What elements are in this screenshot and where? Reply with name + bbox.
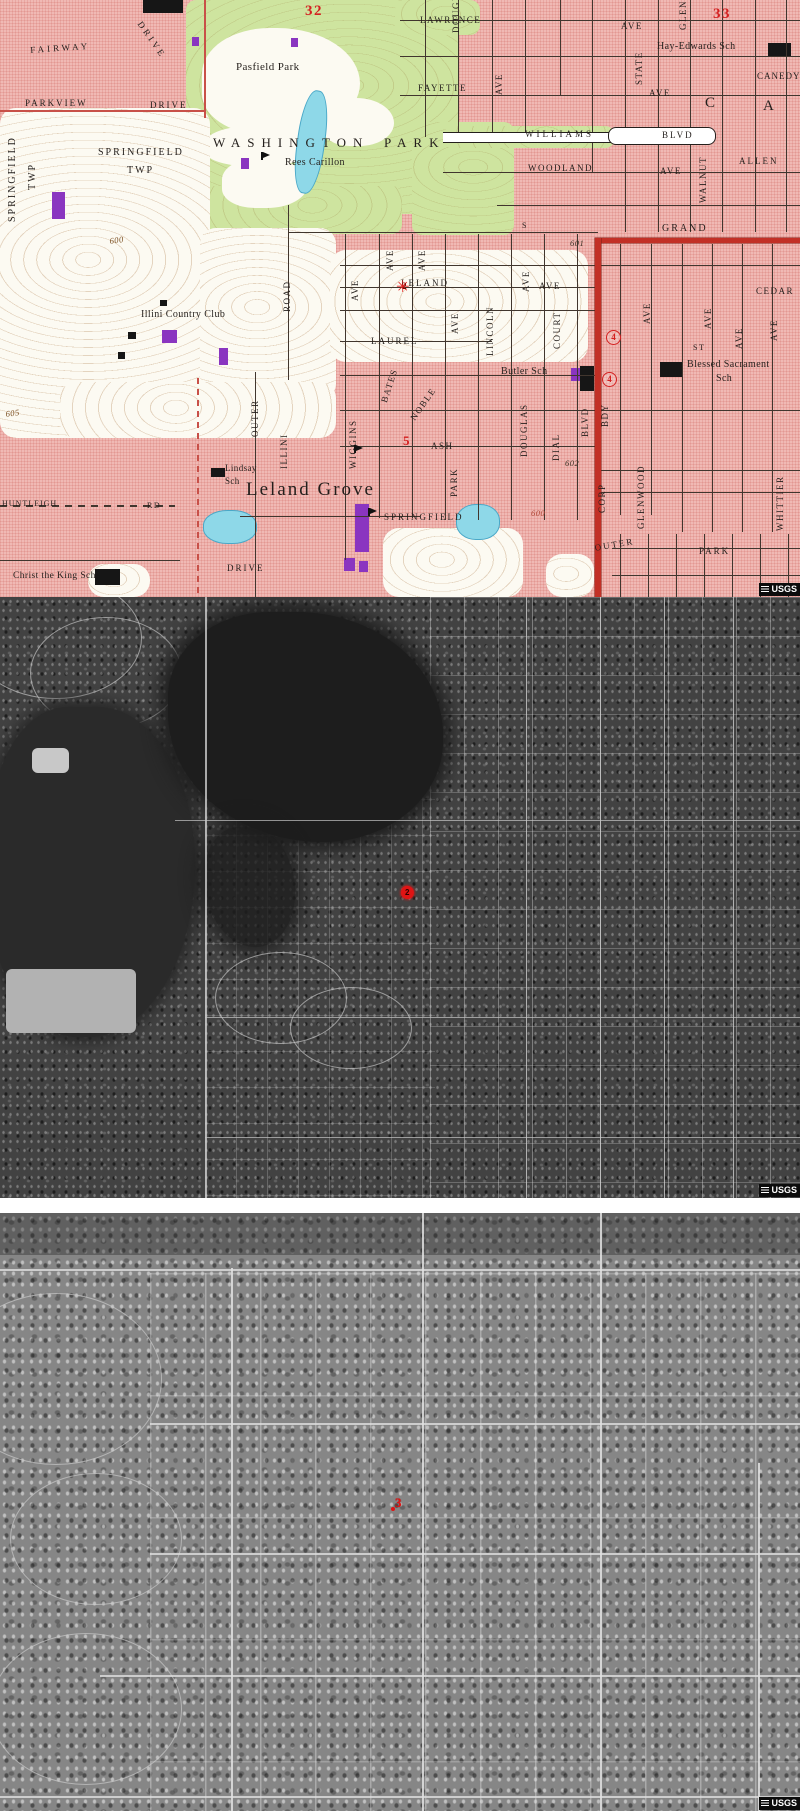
usgs-badge-text: USGS [771, 583, 797, 596]
section-line [204, 0, 206, 118]
map-label: HUNTLEIGH [2, 500, 57, 508]
map-label: WOODLAND [528, 164, 593, 173]
street [0, 1796, 800, 1798]
road-line [625, 0, 626, 232]
road-line [592, 0, 593, 172]
building-purple [355, 504, 369, 552]
map-label: AVE [495, 73, 504, 95]
map-label: TWP [28, 163, 38, 190]
road-line [412, 234, 413, 518]
section-line-dashed [197, 378, 199, 597]
map-label: AVE [418, 249, 427, 271]
map-label: ROAD [283, 280, 292, 312]
road-line [340, 410, 800, 411]
map-label: AVE [539, 282, 561, 291]
map-label: AVE [643, 302, 652, 324]
building [160, 300, 167, 306]
road-line [598, 470, 800, 471]
map-label: Illini Country Club [141, 310, 225, 320]
map-label: BATES [380, 368, 399, 404]
street [205, 1017, 800, 1018]
road-line [544, 234, 545, 520]
street [150, 1423, 800, 1425]
map-label: DOUGLAS [452, 0, 461, 33]
road-line [598, 492, 800, 493]
street [664, 597, 665, 1198]
street-grid-texture [150, 1273, 800, 1811]
road-line [712, 244, 713, 532]
map-label: 5 [403, 434, 411, 447]
road-line [648, 534, 649, 597]
usgs-badge: USGS [759, 1797, 800, 1810]
street [422, 1213, 424, 1811]
map-label: AVE [621, 22, 643, 31]
curved-street [290, 987, 412, 1069]
road-line [651, 244, 652, 515]
curved-street [0, 1293, 162, 1465]
aerial-photo-low-section: 3 USGS [0, 1213, 800, 1811]
school-flag-symbol [354, 445, 356, 453]
building-purple [359, 561, 368, 572]
map-label: BLVD [581, 407, 590, 437]
tree-line [0, 1213, 800, 1255]
map-label: Lindsay [225, 464, 257, 473]
road-line [612, 575, 800, 576]
map-label: WASHINGTON [213, 136, 369, 149]
railroad-corridor [0, 1269, 800, 1271]
map-label: Pasfield Park [236, 62, 300, 73]
street [231, 1268, 233, 1811]
map-label: DIAL [552, 434, 561, 462]
road-line [676, 534, 677, 597]
road-line [690, 0, 691, 232]
building-purple [52, 192, 65, 219]
map-label: GLEN [679, 0, 688, 30]
map-label: Sch [225, 477, 240, 486]
street [100, 1675, 800, 1677]
road-line [478, 234, 479, 520]
map-label: GRAND [662, 224, 708, 234]
road-line [445, 234, 446, 520]
map-label: GLENWOOD [637, 465, 646, 529]
map-label: 601 [570, 239, 584, 248]
road-line [511, 234, 512, 520]
site-marker-number: 2 [405, 888, 409, 897]
map-label: TWP [127, 166, 154, 176]
map-label: LAUREL [371, 337, 419, 346]
road-line [560, 0, 561, 95]
building-purple [291, 38, 298, 47]
map-label: RD [147, 502, 161, 510]
open-area [330, 250, 588, 362]
section-divider [0, 1198, 800, 1213]
map-label: ASH [431, 442, 454, 451]
map-label: AVE [660, 167, 682, 176]
building [580, 366, 594, 391]
road-line [288, 232, 598, 233]
road-line [704, 534, 705, 597]
building [95, 569, 120, 585]
map-label: BDY [601, 403, 610, 427]
map-label: LINCOLN [486, 306, 495, 356]
road-line [755, 0, 756, 232]
section-line [0, 110, 204, 112]
map-label: PARK [699, 547, 730, 556]
street [758, 1463, 760, 1811]
building-purple [192, 37, 199, 46]
street [150, 1553, 800, 1555]
building [660, 362, 682, 377]
route-number: 4 [611, 332, 616, 342]
map-label: COURT [553, 312, 562, 349]
grand-ave-highway [598, 238, 800, 243]
road-line [340, 265, 800, 266]
map-label: ST [693, 344, 705, 352]
map-label: CANEDY [757, 72, 800, 81]
curved-street [10, 1473, 182, 1605]
map-label: Blessed Sacrament [687, 360, 770, 370]
map-label: PARK [450, 468, 459, 497]
map-label: AVE [451, 312, 460, 334]
aerial-photo-mid-section: 2 USGS [0, 597, 800, 1198]
route-4-shield: 4 [606, 330, 621, 345]
road-line [497, 205, 800, 206]
building-purple [241, 158, 249, 169]
road-line [400, 95, 800, 96]
street-grid-texture [430, 597, 800, 1198]
map-label: PARK [384, 136, 445, 149]
map-label: Rees Carillon [285, 158, 345, 168]
site-marker-2: ✳2 [396, 278, 414, 296]
building [143, 0, 183, 13]
map-label: AVE [351, 279, 360, 301]
usgs-badge-text: USGS [771, 1797, 797, 1810]
site-marker-2-number: 2 [402, 282, 407, 291]
map-label: OUTER [251, 400, 260, 438]
route-4-shield: 4 [602, 372, 617, 387]
map-label: Butler Sch [501, 367, 548, 377]
road-line [345, 515, 346, 560]
open-area [546, 554, 594, 597]
building [768, 43, 791, 56]
usgs-logo-icon [761, 586, 769, 594]
map-label: AVE [522, 270, 531, 292]
map-label: A [763, 99, 774, 114]
map-label: AVE [386, 249, 395, 271]
route-number: 4 [607, 374, 612, 384]
open-field [6, 969, 136, 1033]
map-label: WILLIAMS [525, 130, 594, 139]
street [733, 597, 734, 1198]
road-line [577, 234, 578, 520]
map-label: SPRINGFIELD [8, 136, 18, 222]
usgs-badge: USGS [759, 583, 800, 596]
road-line [682, 244, 683, 532]
map-label: SPRINGFIELD [384, 513, 464, 522]
map-label: ALLEN [739, 157, 779, 166]
street [600, 597, 601, 1198]
carillon-symbol [261, 152, 263, 160]
map-label: DRIVE [150, 101, 188, 110]
building-purple [162, 330, 177, 343]
map-label: AVE [704, 307, 713, 329]
road-line [345, 234, 346, 518]
map-label: 33 [713, 7, 731, 22]
map-label: AVE [770, 319, 779, 341]
street [600, 1213, 602, 1811]
building-purple [219, 348, 228, 365]
map-label: 605 [5, 408, 20, 418]
map-label: WALNUT [699, 156, 708, 203]
map-label: ILLINI [280, 434, 289, 470]
road-line [732, 534, 733, 597]
map-label: WHITTIER [776, 476, 785, 531]
road-line [379, 234, 380, 518]
map-label: C [705, 96, 715, 111]
map-label: S [522, 222, 528, 230]
map-label: NOBLE [409, 386, 438, 422]
map-label: 602 [565, 459, 579, 468]
usgs-badge-text: USGS [771, 1184, 797, 1197]
map-label: 600 [109, 235, 124, 245]
screenshot-page: LAWRENCEAVEDRIVEFAIRWAYPARKVIEWDRIVESPRI… [0, 0, 800, 1811]
map-label: DRIVE [136, 20, 168, 60]
map-label: BLVD [662, 131, 694, 140]
site-marker-number: 3 [395, 1495, 402, 1510]
street [205, 1137, 800, 1138]
road-line [786, 0, 787, 232]
map-label: DRIVE [227, 564, 265, 573]
building [128, 332, 136, 339]
map-label: PARKVIEW [25, 99, 88, 108]
street [175, 820, 800, 821]
road-line [0, 560, 180, 561]
map-label: Hay-Edwards Sch [657, 42, 735, 52]
usgs-logo-icon [761, 1800, 769, 1808]
topo-map-section: LAWRENCEAVEDRIVEFAIRWAYPARKVIEWDRIVESPRI… [0, 0, 800, 597]
map-label: CEDAR [756, 287, 794, 296]
open-area [383, 528, 523, 597]
road-line [400, 56, 800, 57]
street [526, 597, 527, 1198]
map-label: STATE [635, 51, 644, 85]
road-line [443, 172, 800, 173]
road-line [620, 244, 621, 515]
map-label: 600 [531, 509, 545, 518]
map-label: AVE [649, 89, 671, 98]
map-label: SPRINGFIELD [98, 148, 184, 158]
map-label: Sch [716, 374, 732, 384]
major-street [205, 597, 207, 1198]
large-building [32, 748, 69, 773]
building [118, 352, 125, 359]
springfield-flag-symbol [368, 508, 370, 516]
map-label: DOUGLAS [520, 403, 529, 457]
road-line [658, 0, 659, 232]
road-line [722, 0, 723, 232]
map-label: 32 [305, 4, 323, 19]
map-label: AVE [735, 327, 744, 349]
site-marker-3-aerial: 3 [395, 1496, 402, 1509]
road-line [742, 244, 743, 532]
map-label: CORP [598, 483, 607, 513]
road-line [340, 375, 598, 376]
map-label: Christ the King Sch [13, 572, 96, 582]
usgs-badge: USGS [759, 1184, 800, 1197]
usgs-logo-icon [761, 1187, 769, 1195]
map-label: FAIRWAY [30, 42, 90, 55]
map-label: Leland Grove [246, 480, 375, 499]
map-label: FAYETTE [418, 84, 467, 93]
building [211, 468, 225, 477]
